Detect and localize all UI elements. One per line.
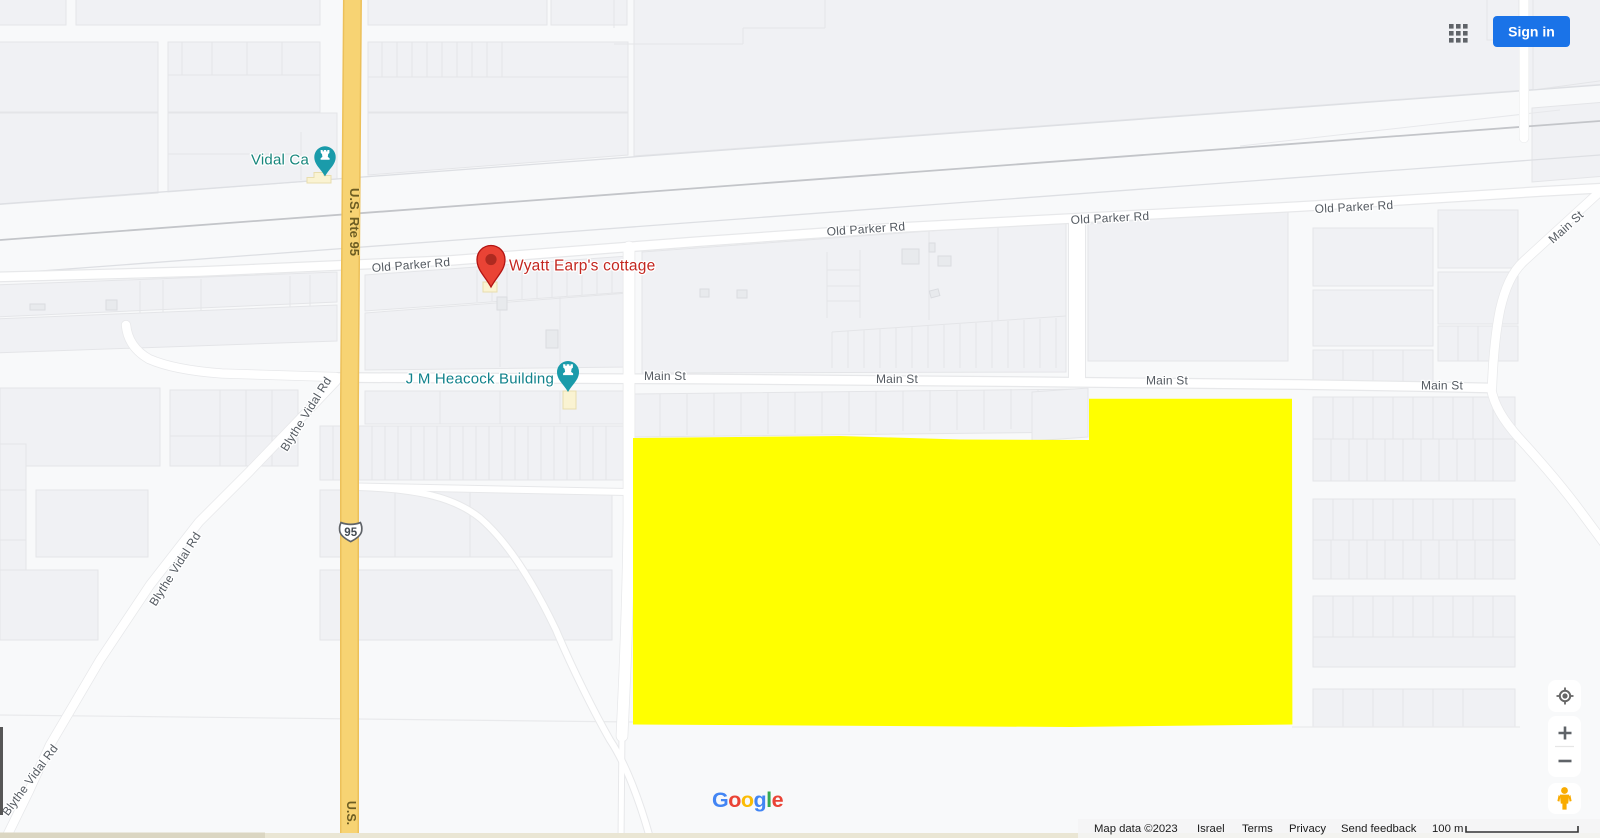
svg-text:95: 95 — [344, 527, 357, 539]
svg-text:Israel: Israel — [1197, 823, 1225, 835]
svg-text:U.S. Rte 95: U.S. Rte 95 — [347, 188, 362, 256]
svg-text:Google: Google — [712, 788, 784, 812]
svg-text:Vidal Ca: Vidal Ca — [251, 152, 309, 169]
svg-text:Sign in: Sign in — [1508, 24, 1555, 40]
svg-text:100 m: 100 m — [1432, 823, 1463, 835]
svg-text:Terms: Terms — [1242, 823, 1273, 835]
svg-text:J M Heacock Building: J M Heacock Building — [406, 371, 554, 388]
svg-text:Send feedback: Send feedback — [1341, 823, 1417, 835]
svg-text:Main St: Main St — [1421, 379, 1464, 393]
svg-text:Main St: Main St — [1146, 374, 1189, 388]
svg-text:Privacy: Privacy — [1289, 823, 1326, 835]
svg-text:Map data ©2023: Map data ©2023 — [1094, 823, 1178, 835]
svg-text:U.S.: U.S. — [344, 801, 358, 825]
svg-text:Wyatt Earp's cottage: Wyatt Earp's cottage — [509, 258, 655, 275]
svg-text:Main St: Main St — [876, 372, 919, 386]
svg-text:Main St: Main St — [644, 369, 687, 383]
